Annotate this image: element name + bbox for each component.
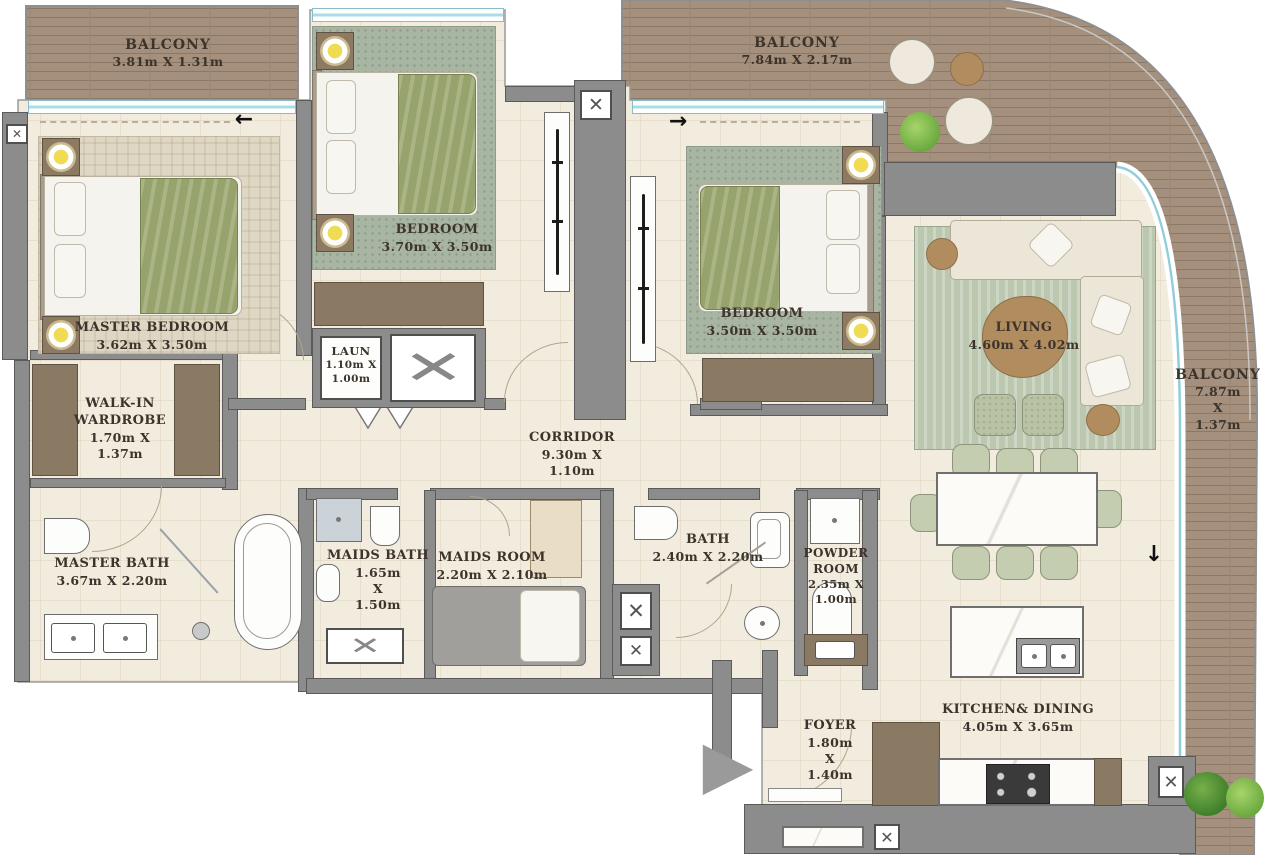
dining-chair bbox=[1040, 546, 1078, 580]
bath-shaft-x-icon-b: ✕ bbox=[620, 636, 652, 666]
arrow-down-icon: ↓ bbox=[1140, 540, 1168, 568]
curtain-line-master bbox=[40, 121, 230, 123]
shower-head-icon bbox=[192, 622, 210, 640]
bedroom-right-nightstand-a bbox=[842, 146, 880, 184]
master-bed-throw bbox=[140, 178, 238, 314]
balcony-plant-icon bbox=[1184, 772, 1230, 816]
room-label-corridor: CORRIDOR9.30m X 1.10m bbox=[524, 430, 620, 479]
sink-basin bbox=[103, 623, 147, 653]
room-label-master-bedroom: MASTER BEDROOM3.62m X 3.50m bbox=[67, 320, 237, 353]
curtain-line-bedroom-top bbox=[322, 27, 472, 29]
powder-sink bbox=[810, 498, 860, 544]
side-table-a bbox=[926, 238, 958, 270]
bedside-lamp-icon bbox=[320, 36, 350, 66]
wall-wardrobe-right bbox=[222, 350, 238, 490]
master-nightstand-a bbox=[42, 138, 80, 176]
wall-left-lower bbox=[14, 360, 30, 682]
bedroom-top-pillow-a bbox=[326, 80, 356, 134]
wall-left-upper bbox=[2, 112, 28, 360]
room-label-maids-bath: MAIDS BATH1.65m X 1.50m bbox=[326, 548, 430, 614]
room-label-maids-room: MAIDS ROOM2.20m X 2.10m bbox=[432, 550, 552, 583]
kitchen-cabinet-right bbox=[1094, 758, 1122, 806]
balcony-plant-icon bbox=[1226, 778, 1264, 818]
closet-x-icon: ✕ bbox=[326, 628, 404, 664]
arrow-left-icon: ← bbox=[222, 108, 266, 130]
room-label-bedroom-right: BEDROOM3.50m X 3.50m bbox=[687, 306, 837, 339]
wall-masterbed-bedroom-divider bbox=[296, 100, 312, 356]
bottom-band-shelf bbox=[782, 826, 864, 848]
kitchen-sink bbox=[1016, 638, 1080, 674]
wardrobe-panel-b bbox=[630, 176, 656, 362]
wardrobe-panel-a bbox=[544, 112, 570, 292]
entry-arrow-icon: ▶ bbox=[692, 722, 764, 806]
balcony-chair bbox=[888, 38, 936, 86]
room-label-living: LIVING4.60m X 4.02m bbox=[949, 320, 1099, 353]
bedside-lamp-icon bbox=[46, 142, 76, 172]
wardrobe-closet-right bbox=[174, 364, 220, 476]
bath-shaft-x-icon-a: ✕ bbox=[620, 592, 652, 630]
sink-basin bbox=[1021, 644, 1047, 668]
bedroom-right-pillow-a bbox=[826, 190, 860, 240]
floor-plan: ✕ ✕ ✕ ✕ ✕ ✕ ✕ ← bbox=[0, 0, 1280, 855]
wall-living-top-block bbox=[884, 162, 1116, 216]
dining-table bbox=[936, 472, 1098, 546]
shaft-x-icon: ✕ bbox=[390, 334, 476, 402]
room-label-balcony-top: BALCONY7.84m X 2.17m bbox=[707, 34, 887, 68]
double-sink-counter bbox=[44, 614, 158, 660]
bedroom-top-throw bbox=[398, 74, 476, 214]
bedroom-right-dresser bbox=[702, 358, 874, 402]
bedside-lamp-icon bbox=[846, 316, 876, 346]
bedroom-top-dresser bbox=[314, 282, 484, 326]
wall-corridor-bottom-c bbox=[648, 488, 760, 500]
arrow-right-icon: → bbox=[656, 110, 700, 132]
balcony-table bbox=[950, 52, 984, 86]
shower-tray bbox=[316, 498, 362, 542]
ottoman-a bbox=[974, 394, 1016, 436]
toilet bbox=[370, 506, 400, 546]
kitchen-pillar-x-icon: ✕ bbox=[1158, 766, 1184, 798]
sink-basin bbox=[51, 623, 95, 653]
bedroom-right-pillow-b bbox=[826, 244, 860, 294]
window-bedroom-top bbox=[312, 8, 504, 22]
wall-foyer-left-b bbox=[762, 650, 778, 728]
room-label-laundry: LAUN1.10m X 1.00m bbox=[322, 344, 380, 386]
bathtub bbox=[234, 514, 302, 650]
curtain-line-bedroom-right bbox=[700, 121, 860, 123]
wall-top-stub bbox=[505, 86, 575, 102]
maids-bed-pillow bbox=[520, 590, 580, 662]
bedside-lamp-icon bbox=[846, 150, 876, 180]
wall-corridor-top-a bbox=[228, 398, 306, 410]
shaft-x-icon-small: ✕ bbox=[580, 90, 612, 120]
room-label-foyer: FOYER1.80m X 1.40m bbox=[795, 718, 865, 784]
dining-chair bbox=[996, 546, 1034, 580]
bedroom-top-nightstand-b bbox=[316, 214, 354, 252]
master-bed-pillow-b bbox=[54, 244, 86, 298]
balcony-chair bbox=[944, 96, 994, 146]
room-label-powder-room: POWDER ROOM2.35m X 1.00m bbox=[803, 546, 869, 607]
sink-basin bbox=[1050, 644, 1076, 668]
room-label-kitchen-dining: KITCHEN& DINING4.05m X 3.65m bbox=[923, 702, 1113, 735]
side-table-b bbox=[1086, 404, 1120, 436]
room-label-balcony-right: BALCONY7.87m X 1.37m bbox=[1173, 366, 1263, 433]
stove-icon bbox=[986, 764, 1050, 804]
ottoman-b bbox=[1022, 394, 1064, 436]
balcony-plant-icon bbox=[900, 112, 940, 152]
clothes-hanger-icon bbox=[642, 194, 645, 345]
round-sink bbox=[744, 606, 780, 640]
room-label-wardrobe: WALK-IN WARDROBE1.70m X 1.37m bbox=[68, 396, 172, 462]
dining-chair bbox=[952, 546, 990, 580]
foyer-mat bbox=[768, 788, 842, 802]
powder-shelf bbox=[804, 634, 868, 666]
bedroom-top-nightstand-a bbox=[316, 32, 354, 70]
bedroom-right-nightstand-b bbox=[842, 312, 880, 350]
ac-unit-icon: ✕ bbox=[6, 124, 28, 144]
toilet bbox=[44, 518, 90, 554]
powder-shelf-tray bbox=[815, 641, 855, 659]
room-label-master-bath: MASTER BATH3.67m X 2.20m bbox=[47, 556, 177, 589]
room-label-bath: BATH2.40m X 2.20m bbox=[648, 532, 768, 565]
wall-corridor-top-b bbox=[484, 398, 506, 410]
central-shaft-column bbox=[574, 80, 626, 420]
bedroom-top-pillow-b bbox=[326, 140, 356, 194]
bottom-band-x-icon: ✕ bbox=[874, 824, 900, 850]
wall-maids-block-bottom bbox=[306, 678, 764, 694]
bedroom-right-throw bbox=[700, 186, 780, 310]
wall-corridor-bottom-b bbox=[430, 488, 614, 500]
bedside-lamp-icon bbox=[320, 218, 350, 248]
room-label-balcony-tl: BALCONY3.81m X 1.31m bbox=[78, 36, 258, 70]
master-bed-pillow-a bbox=[54, 182, 86, 236]
room-label-bedroom-top: BEDROOM3.70m X 3.50m bbox=[362, 222, 512, 255]
bathtub-inner bbox=[243, 523, 291, 639]
clothes-hanger-icon bbox=[556, 129, 559, 275]
